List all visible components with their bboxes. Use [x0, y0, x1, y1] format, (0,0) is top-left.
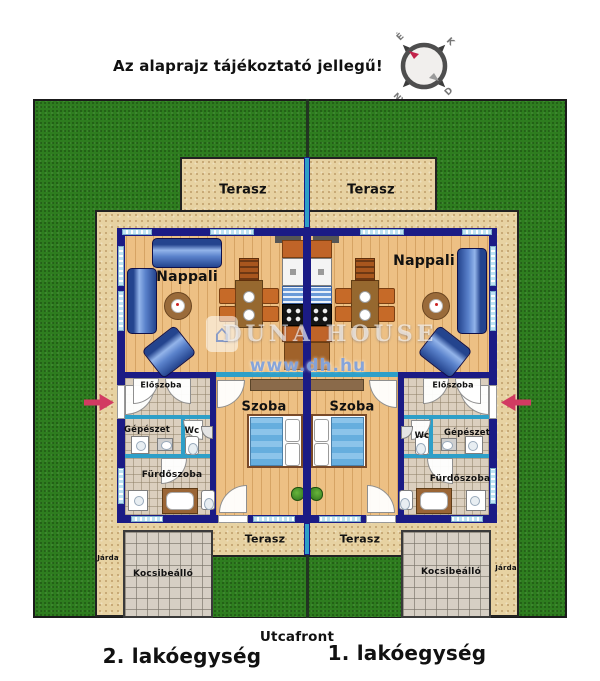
dining-chair [335, 306, 352, 322]
shower-drain [134, 496, 144, 506]
window-side-1 [490, 246, 496, 286]
label-kocsibeallo-right: Kocsibeálló [421, 567, 481, 577]
partition-utility-top [125, 415, 210, 419]
label-kocsibeallo-left: Kocsibeálló [133, 569, 193, 579]
sink-tap [290, 269, 296, 275]
compass-south-label: D [443, 86, 455, 98]
washing-machine-door [136, 441, 146, 451]
lawn-bottom-right [307, 555, 401, 617]
plate [243, 291, 255, 303]
terrace-door [218, 515, 248, 523]
label-utcafront: Utcafront [260, 629, 334, 645]
label-furdoszoba-right: Fürdőszoba [430, 474, 490, 484]
double-bed [311, 414, 367, 468]
kitchen-sink-unit [309, 258, 332, 286]
window-bottom-1 [451, 516, 483, 522]
terrace-divider-top [304, 157, 310, 228]
entrance-door [117, 385, 125, 419]
window-side-1 [118, 246, 124, 286]
kitchen-cabinet-upper [282, 240, 305, 258]
coffee-table [422, 292, 450, 320]
bed-blanket [250, 417, 283, 466]
bed-pillow [285, 419, 300, 442]
window-bottom-2 [253, 516, 295, 522]
compass-north-label: É [394, 30, 407, 43]
label-nappali-right: Nappali [393, 253, 455, 269]
label-eloszoba-right: Előszoba [432, 381, 473, 390]
plant-icon [309, 487, 323, 501]
washing-machine [131, 436, 149, 454]
sofa-top [152, 238, 222, 268]
label-nappali-left: Nappali [156, 269, 218, 285]
shower [466, 490, 486, 511]
sink-tap [318, 269, 324, 275]
dishwasher [282, 286, 305, 304]
entrance-door [489, 385, 497, 419]
window-top-1 [122, 229, 152, 235]
label-unit-2: 2. lakóegység [103, 644, 262, 668]
watermark-url: www.dh.hu [250, 356, 366, 376]
bath-toilet-bowl [400, 498, 410, 510]
bed-pillow [285, 443, 300, 466]
label-jarda-right: Járda [495, 564, 517, 572]
bathtub-basin [166, 492, 194, 510]
bathtub-basin [420, 492, 448, 510]
bed-pillow [314, 443, 329, 466]
compass-icon: É K NY D [388, 28, 460, 104]
sofa-side [457, 248, 487, 334]
window-side-2 [490, 291, 496, 331]
toilet [185, 436, 199, 455]
label-eloszoba-left: Előszoba [140, 381, 181, 390]
plate [359, 309, 371, 321]
label-unit-1: 1. lakóegység [328, 641, 487, 665]
coffee-table [164, 292, 192, 320]
compass-east-label: K [444, 36, 457, 49]
window-top-1 [462, 229, 492, 235]
plate [243, 309, 255, 321]
coffee-table-top [429, 299, 443, 313]
utility-sink [441, 438, 457, 451]
bath-toilet [399, 490, 413, 510]
label-terasz-top-right: Terasz [347, 183, 395, 198]
bath-toilet-bowl [204, 498, 214, 510]
kitchen-sink-unit [282, 258, 305, 286]
label-gepeszet-right: Gépészet [444, 428, 490, 438]
toilet-bowl [188, 443, 198, 455]
sideboard [239, 258, 259, 281]
utility-sink-basin [442, 441, 453, 450]
kitchen-cabinet-upper [309, 240, 332, 258]
label-szoba-right: Szoba [330, 400, 375, 415]
double-bed [247, 414, 303, 468]
window-top-2 [360, 229, 404, 235]
terrace-divider-bottom [304, 523, 310, 555]
bathtub [416, 488, 452, 514]
coffee-table-detail [176, 303, 179, 306]
washing-machine [465, 436, 483, 454]
utility-sink [157, 438, 173, 451]
window-side-3 [118, 468, 124, 504]
label-jarda-left: Járda [97, 554, 119, 562]
coffee-table-top [171, 299, 185, 313]
bed-pillow [314, 419, 329, 442]
window-bottom-2 [319, 516, 361, 522]
lawn-bottom-left [213, 555, 307, 617]
watermark-brand: DUNA HOUSE [223, 321, 438, 347]
bath-toilet [201, 490, 215, 510]
sofa-side [127, 268, 157, 334]
label-wc-right: Wc [415, 431, 430, 441]
washing-machine-door [468, 441, 478, 451]
label-terasz-bottom-left: Terasz [245, 533, 286, 546]
dining-chair [262, 306, 279, 322]
label-gepeszet-left: Gépészet [124, 425, 170, 435]
dining-chair [378, 306, 395, 322]
shower [128, 490, 148, 511]
wardrobe [309, 379, 364, 391]
shower-drain [470, 496, 480, 506]
label-terasz-bottom-right: Terasz [340, 533, 381, 546]
dishwasher [309, 286, 332, 304]
partition-utility-top [404, 415, 489, 419]
plot-divider-bottom [306, 555, 309, 617]
window-bottom-1 [131, 516, 163, 522]
window-top-2 [210, 229, 254, 235]
terrace-door [366, 515, 396, 523]
sideboard [355, 258, 375, 281]
label-szoba-left: Szoba [242, 400, 287, 415]
wardrobe [250, 379, 305, 391]
bathtub [162, 488, 198, 514]
dining-chair [378, 288, 395, 304]
label-terasz-top-left: Terasz [219, 183, 267, 198]
plate [359, 291, 371, 303]
disclaimer-text: Az alaprajz tájékoztató jellegű! [113, 57, 383, 75]
bed-blanket [331, 417, 364, 466]
floorplan-image: Az alaprajz tájékoztató jellegű! É K NY … [0, 0, 600, 681]
toilet-bowl [416, 443, 426, 455]
window-side-3 [490, 468, 496, 504]
label-furdoszoba-left: Fürdőszoba [142, 470, 202, 480]
utility-sink-basin [161, 441, 172, 450]
label-wc-left: Wc [185, 426, 200, 436]
dining-chair [335, 288, 352, 304]
dining-chair [219, 288, 236, 304]
dining-chair [262, 288, 279, 304]
coffee-table-detail [435, 303, 438, 306]
window-side-2 [118, 291, 124, 331]
